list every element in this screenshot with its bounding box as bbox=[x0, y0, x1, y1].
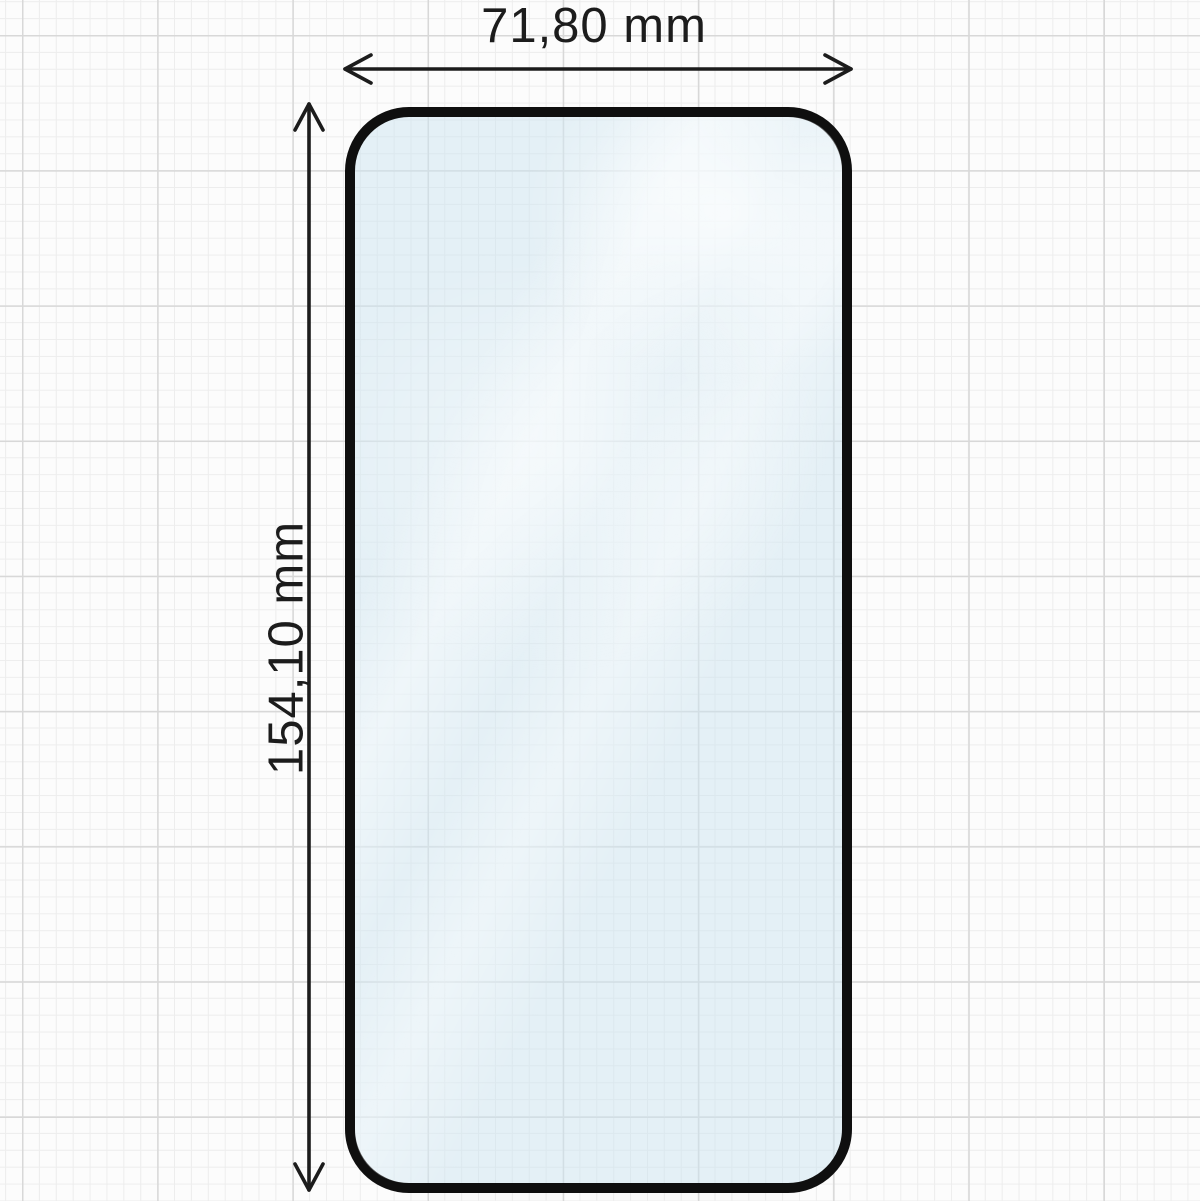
glass-reflection-highlight bbox=[355, 117, 842, 1183]
diagram-canvas: 71,80 mm 154,10 mm bbox=[0, 0, 1200, 1201]
width-dimension-arrow bbox=[342, 49, 854, 89]
height-dimension-label: 154,10 mm bbox=[263, 521, 312, 775]
screen-protector-outline bbox=[345, 107, 852, 1193]
width-dimension-label: 71,80 mm bbox=[481, 2, 707, 51]
